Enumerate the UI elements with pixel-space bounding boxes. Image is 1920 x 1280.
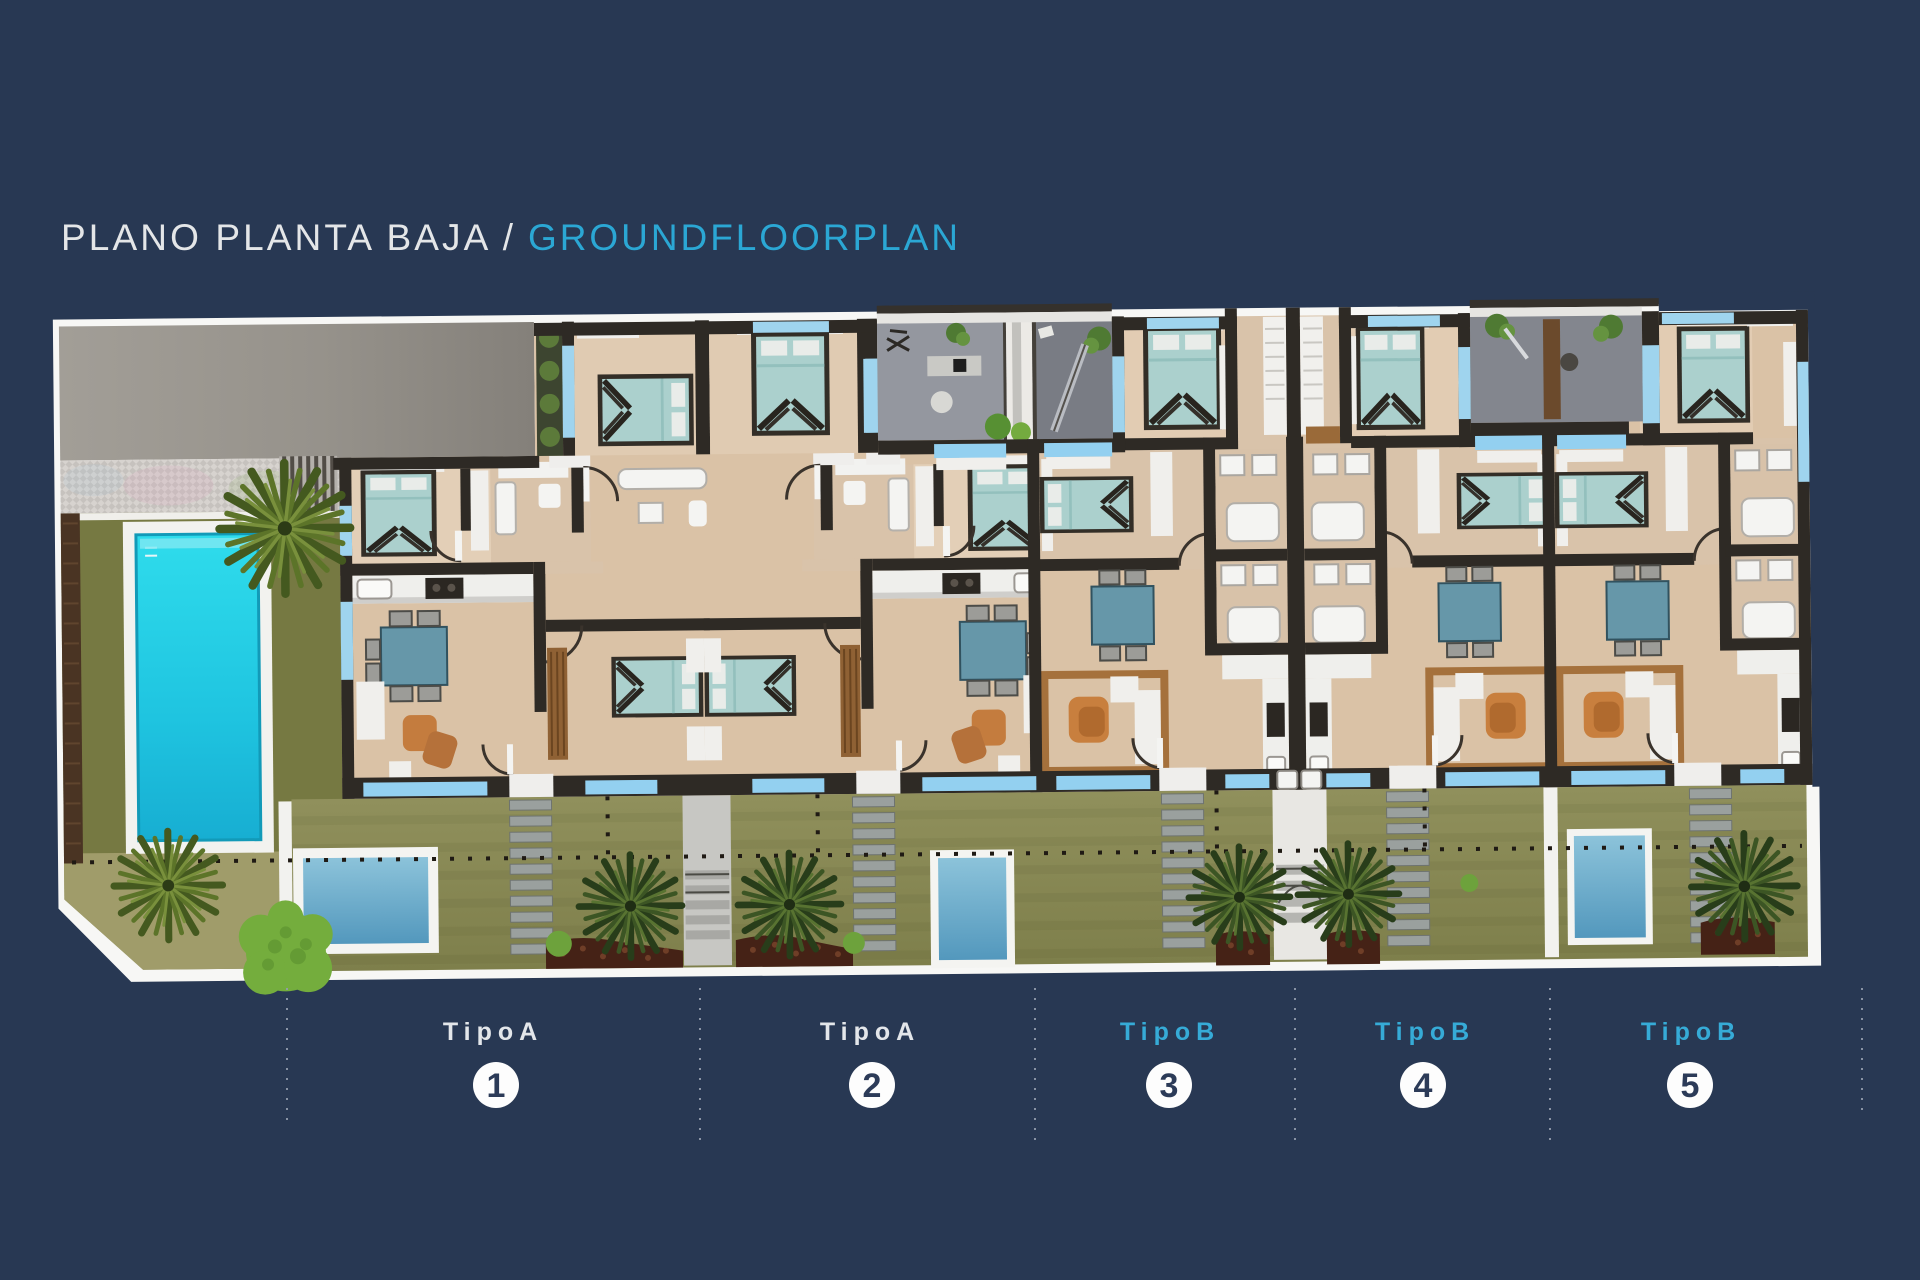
svg-text:2: 2 bbox=[863, 1067, 882, 1105]
svg-text:TipoA: TipoA bbox=[820, 1018, 920, 1046]
svg-text:1: 1 bbox=[487, 1067, 506, 1105]
svg-text:3: 3 bbox=[1160, 1067, 1179, 1105]
svg-text:TipoA: TipoA bbox=[443, 1018, 543, 1046]
svg-text:5: 5 bbox=[1681, 1067, 1700, 1105]
svg-text:4: 4 bbox=[1414, 1067, 1433, 1105]
svg-text:PLANO PLANTA BAJA /: PLANO PLANTA BAJA / bbox=[61, 217, 514, 258]
svg-text:TipoB: TipoB bbox=[1641, 1018, 1741, 1046]
svg-text:TipoB: TipoB bbox=[1120, 1018, 1220, 1046]
svg-text:TipoB: TipoB bbox=[1375, 1018, 1475, 1046]
svg-text:GROUNDFLOORPLAN: GROUNDFLOORPLAN bbox=[528, 217, 958, 258]
